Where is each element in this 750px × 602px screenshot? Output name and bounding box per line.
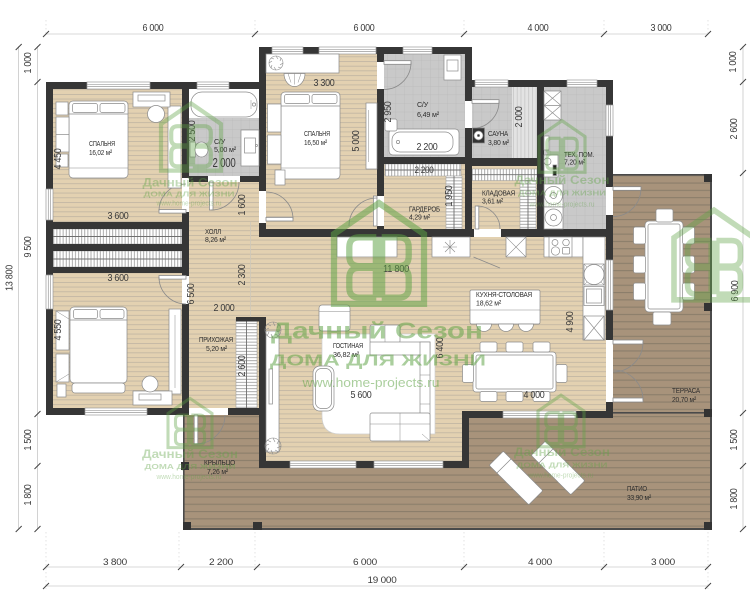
svg-text:www.home-projects.ru: www.home-projects.ru — [156, 472, 222, 481]
svg-text:ДОМА ДЛЯ ЖИЗНИ: ДОМА ДЛЯ ЖИЗНИ — [145, 462, 236, 471]
svg-text:ДОМА ДЛЯ ЖИЗНИ: ДОМА ДЛЯ ЖИЗНИ — [518, 189, 606, 198]
svg-text:1 500: 1 500 — [23, 429, 34, 451]
svg-text:2 600: 2 600 — [729, 118, 740, 140]
svg-text:3 000: 3 000 — [651, 557, 675, 567]
svg-text:2 200: 2 200 — [415, 165, 434, 175]
svg-text:8,26 м²: 8,26 м² — [205, 235, 227, 244]
svg-text:4 450: 4 450 — [53, 148, 64, 170]
svg-text:4 000: 4 000 — [528, 557, 552, 567]
svg-text:6 500: 6 500 — [186, 283, 197, 305]
svg-text:Дачный Сезон: Дачный Сезон — [143, 176, 238, 190]
svg-text:1 950: 1 950 — [444, 185, 455, 207]
svg-text:1 000: 1 000 — [23, 52, 34, 74]
svg-text:ДОМА ДЛЯ ЖИЗНИ: ДОМА ДЛЯ ЖИЗНИ — [270, 353, 486, 370]
svg-text:Дачный Сезон: Дачный Сезон — [142, 447, 238, 461]
svg-text:4 900: 4 900 — [565, 311, 576, 333]
svg-text:6 000: 6 000 — [353, 557, 377, 567]
svg-text:4 550: 4 550 — [53, 319, 64, 341]
svg-text:www.home-projects.ru: www.home-projects.ru — [529, 200, 595, 209]
svg-text:3 600: 3 600 — [108, 211, 130, 222]
svg-text:1 500: 1 500 — [729, 429, 740, 451]
svg-text:ТЕРРАСА: ТЕРРАСА — [672, 386, 701, 395]
svg-text:13 800: 13 800 — [5, 264, 16, 291]
svg-text:2 200: 2 200 — [417, 142, 439, 153]
svg-text:3,80 м²: 3,80 м² — [488, 138, 510, 147]
svg-text:3 300: 3 300 — [314, 78, 336, 89]
svg-text:СПАЛЬНЯ: СПАЛЬНЯ — [89, 139, 115, 148]
svg-text:www.home-projects.ru: www.home-projects.ru — [301, 376, 439, 390]
svg-text:3 000: 3 000 — [651, 23, 673, 34]
svg-text:16,50 м²: 16,50 м² — [304, 138, 328, 147]
svg-text:СПАЛЬНЯ: СПАЛЬНЯ — [304, 129, 330, 138]
svg-text:20,70 м²: 20,70 м² — [672, 395, 697, 404]
svg-text:18,62 м²: 18,62 м² — [476, 299, 502, 308]
svg-text:4 000: 4 000 — [528, 23, 550, 34]
svg-text:2 000: 2 000 — [214, 303, 236, 314]
svg-text:1 800: 1 800 — [23, 484, 34, 506]
svg-text:3 800: 3 800 — [103, 557, 127, 567]
svg-text:САУНА: САУНА — [488, 129, 509, 138]
svg-text:1 800: 1 800 — [729, 488, 740, 510]
svg-text:С/У: С/У — [417, 100, 428, 109]
svg-text:4,29 м²: 4,29 м² — [409, 213, 431, 222]
svg-text:5,20 м²: 5,20 м² — [206, 344, 228, 353]
svg-text:5,00 м²: 5,00 м² — [214, 145, 237, 154]
svg-text:2 200: 2 200 — [209, 557, 233, 567]
svg-text:1 000: 1 000 — [728, 51, 739, 73]
svg-text:3 600: 3 600 — [108, 273, 130, 284]
svg-text:www.home-projects.ru: www.home-projects.ru — [528, 471, 594, 480]
svg-text:www.home-projects.ru: www.home-projects.ru — [156, 199, 222, 208]
svg-text:1 600: 1 600 — [237, 194, 248, 216]
svg-text:7,20 м²: 7,20 м² — [564, 158, 586, 167]
svg-text:6,49 м²: 6,49 м² — [417, 110, 440, 119]
svg-text:Дачный Сезон: Дачный Сезон — [514, 445, 610, 459]
svg-text:ДОМА ДЛЯ ЖИЗНИ: ДОМА ДЛЯ ЖИЗНИ — [144, 190, 235, 199]
svg-text:ДОМА ДЛЯ ЖИЗНИ: ДОМА ДЛЯ ЖИЗНИ — [517, 461, 608, 470]
svg-text:2 000: 2 000 — [213, 156, 236, 170]
svg-text:33,90 м²: 33,90 м² — [627, 493, 652, 502]
svg-text:2 300: 2 300 — [237, 264, 248, 286]
svg-text:5 000: 5 000 — [351, 130, 362, 152]
svg-text:4 000: 4 000 — [524, 390, 546, 401]
svg-text:5 600: 5 600 — [351, 390, 373, 401]
svg-text:2 600: 2 600 — [237, 355, 248, 377]
svg-text:ПАТИО: ПАТИО — [627, 484, 647, 493]
svg-text:9 500: 9 500 — [23, 236, 34, 258]
svg-text:Дачный Сезон: Дачный Сезон — [515, 173, 610, 187]
svg-text:2 950: 2 950 — [383, 101, 394, 123]
svg-text:Дачный Сезон: Дачный Сезон — [271, 318, 483, 344]
svg-text:3,61 м²: 3,61 м² — [482, 197, 504, 206]
svg-text:6 000: 6 000 — [143, 23, 165, 34]
svg-text:2 000: 2 000 — [514, 106, 525, 128]
svg-text:ПРИХОЖАЯ: ПРИХОЖАЯ — [199, 335, 233, 344]
svg-text:16,02 м²: 16,02 м² — [89, 148, 113, 157]
svg-text:6 000: 6 000 — [354, 23, 376, 34]
svg-text:19 000: 19 000 — [368, 575, 397, 585]
